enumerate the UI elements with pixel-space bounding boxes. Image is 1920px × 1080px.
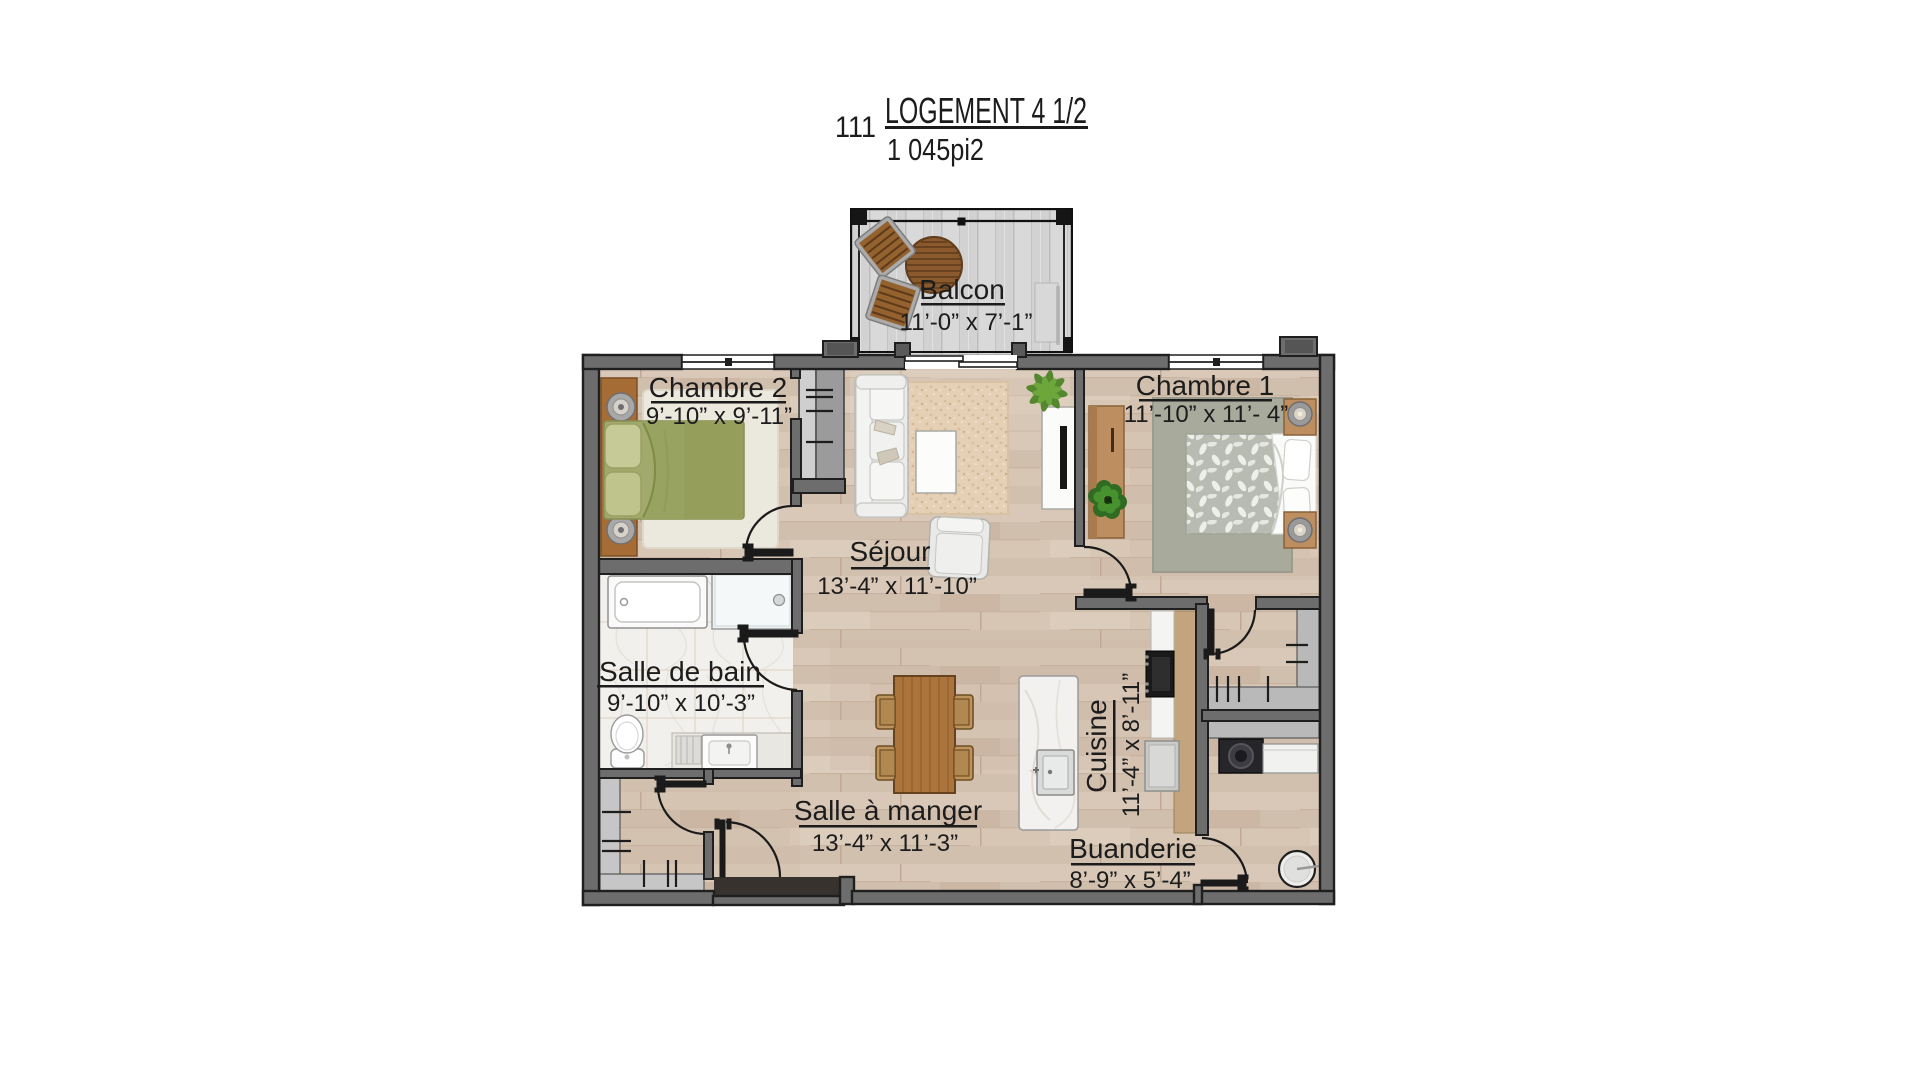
svg-text:1 045pi2: 1 045pi2	[887, 132, 984, 167]
svg-text:11’-4” x 8’-11”: 11’-4” x 8’-11”	[1118, 673, 1145, 818]
svg-text:Chambre 1: Chambre 1	[1136, 370, 1275, 401]
svg-text:9’-10” x 10’-3”: 9’-10” x 10’-3”	[607, 690, 755, 717]
svg-text:111: 111	[835, 111, 876, 144]
svg-text:Chambre 2: Chambre 2	[649, 372, 788, 403]
svg-text:13’-4” x 11’-3”: 13’-4” x 11’-3”	[812, 830, 958, 857]
svg-text:Séjour: Séjour	[850, 536, 931, 567]
svg-text:8’-9” x 5’-4”: 8’-9” x 5’-4”	[1069, 867, 1190, 894]
svg-text:Salle à manger: Salle à manger	[794, 795, 982, 826]
svg-text:11’-10” x 11’- 4”: 11’-10” x 11’- 4”	[1124, 401, 1289, 428]
svg-text:Balcon: Balcon	[919, 274, 1005, 305]
svg-text:11’-0” x 7’-1”: 11’-0” x 7’-1”	[900, 309, 1033, 336]
svg-text:9’-10” x 9’-11”: 9’-10” x 9’-11”	[646, 403, 792, 430]
svg-text:Salle de bain: Salle de bain	[599, 656, 761, 687]
svg-text:13’-4” x 11’-10”: 13’-4” x 11’-10”	[817, 573, 977, 600]
svg-text:Buanderie: Buanderie	[1069, 833, 1197, 864]
svg-text:LOGEMENT 4 1/2: LOGEMENT 4 1/2	[885, 90, 1087, 131]
svg-text:Cuisine: Cuisine	[1081, 699, 1112, 792]
